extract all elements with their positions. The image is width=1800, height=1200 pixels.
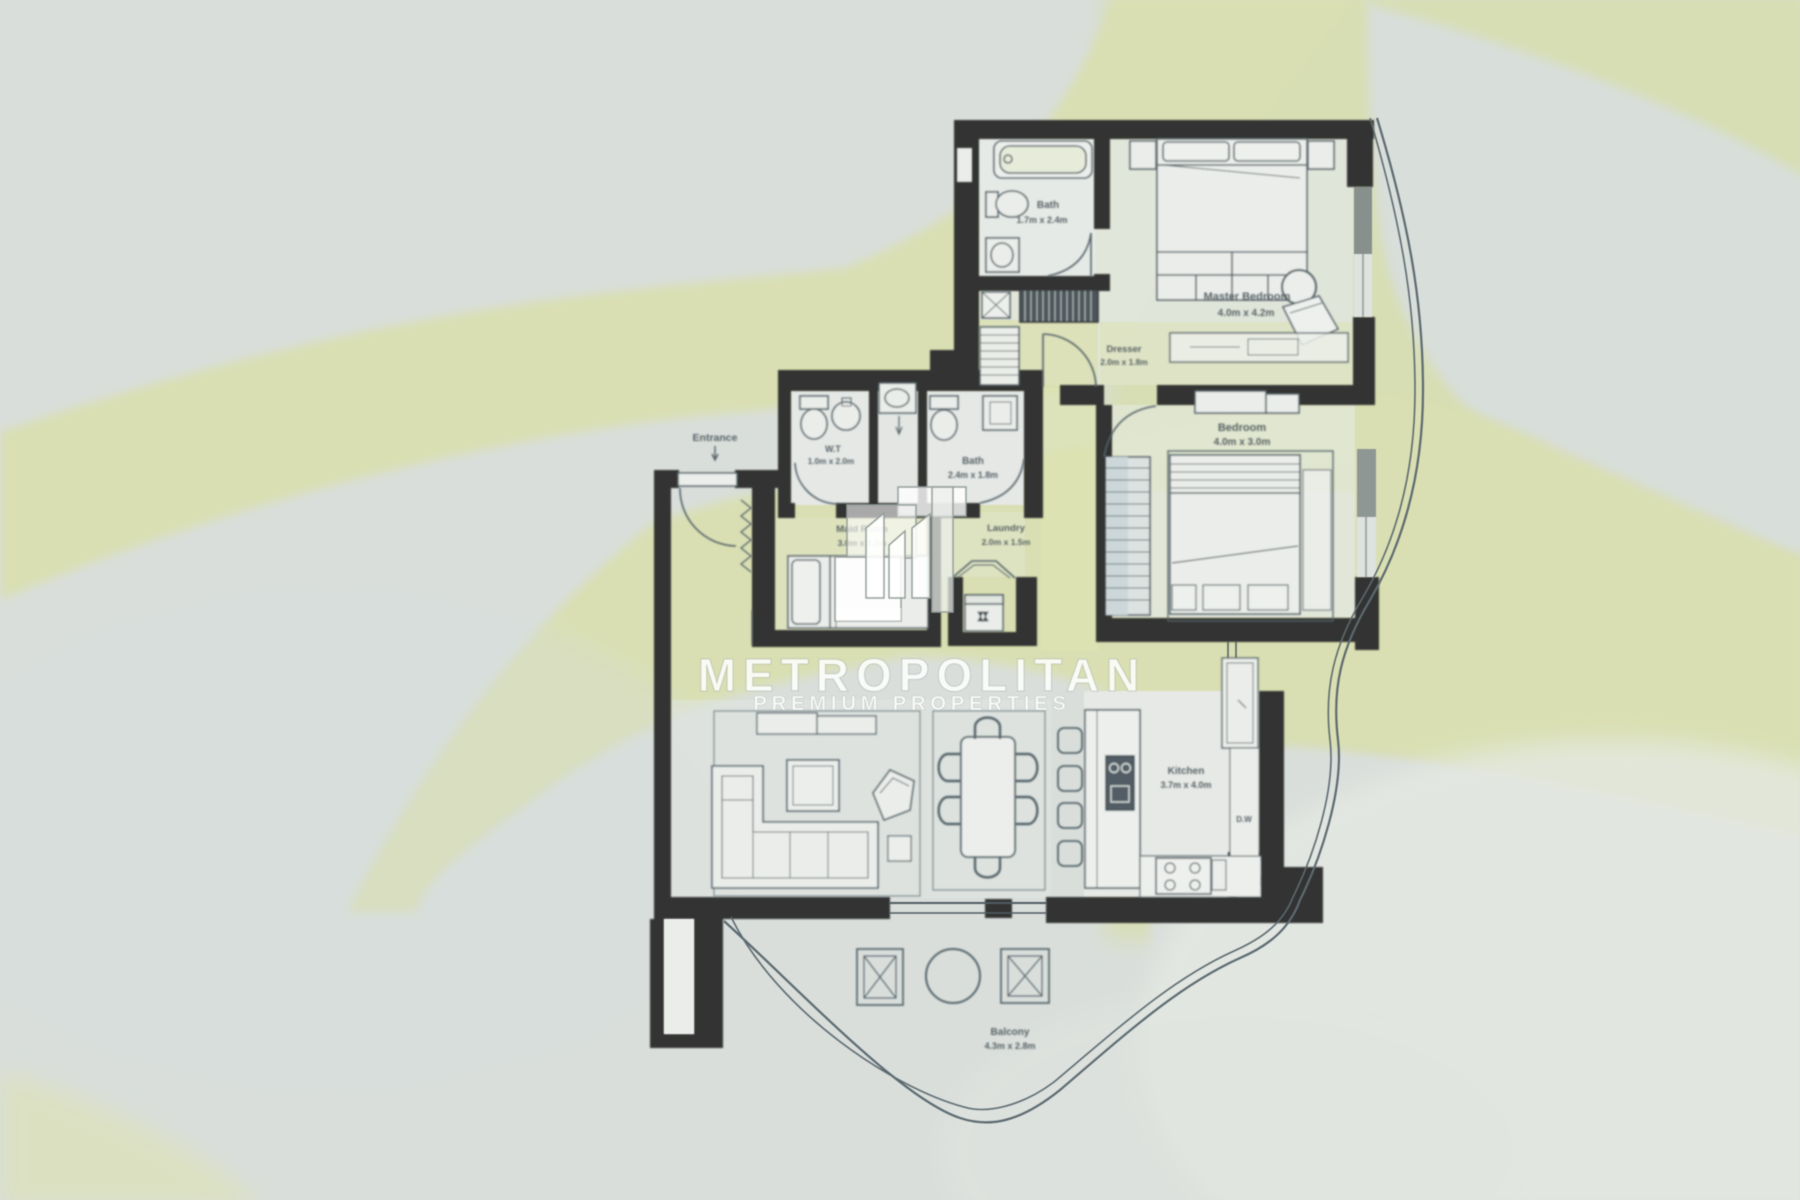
svg-text:PREMIUM PROPERTIES: PREMIUM PROPERTIES xyxy=(753,692,1070,715)
